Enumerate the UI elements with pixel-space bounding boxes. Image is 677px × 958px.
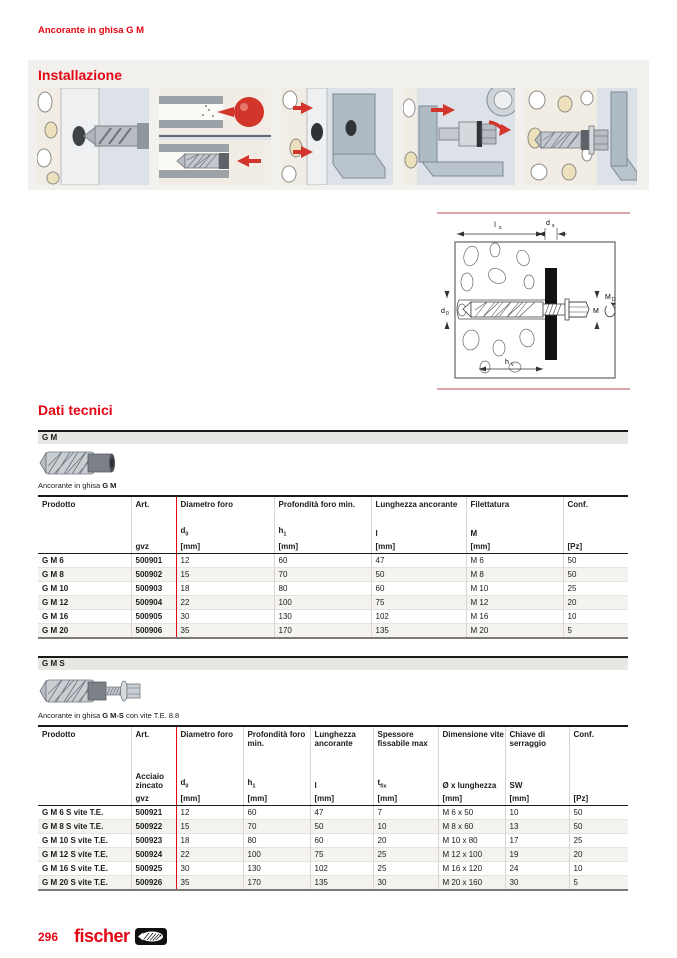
section-gms-band: G M S (38, 656, 628, 670)
table-cell: 18 (176, 834, 243, 848)
column-symbol: l (310, 762, 373, 792)
column-unit: [mm] (274, 540, 371, 554)
column-symbol: l (371, 524, 466, 540)
table-cell: 60 (243, 806, 310, 820)
table-cell: 22 (176, 596, 274, 610)
table-cell: 75 (310, 848, 373, 862)
table-cell: 500924 (131, 848, 176, 862)
data-table: ProdottoArt.Diametro foroProfondità foro… (38, 495, 628, 639)
column-header: Conf. (569, 726, 628, 762)
table-cell: 500925 (131, 862, 176, 876)
table-cell: 500905 (131, 610, 176, 624)
table-row: G M 10500903188060M 1025 (38, 582, 628, 596)
column-header: Diametro foro (176, 496, 274, 524)
column-unit (38, 540, 131, 554)
column-header: Art. (131, 496, 176, 524)
table-cell: M 10 (466, 582, 563, 596)
table-cell: 70 (274, 568, 371, 582)
column-unit (38, 792, 131, 806)
column-symbol (131, 524, 176, 540)
table-cell: G M 12 (38, 596, 131, 610)
column-header: Dimensione vite (438, 726, 505, 762)
table-cell: 500903 (131, 582, 176, 596)
dim-fixture-label: d (546, 220, 550, 227)
section-gm-band: G M (38, 430, 628, 444)
column-unit: [Pz] (563, 540, 628, 554)
table-cell: 47 (310, 806, 373, 820)
table-cell: 13 (505, 820, 569, 834)
column-symbol: tfix (373, 762, 438, 792)
table-row: G M 125009042210075M 1220 (38, 596, 628, 610)
installation-step-2-clean-insert-icon (159, 88, 271, 185)
table-cell: 50 (563, 554, 628, 568)
page-footer: 296 fischer (38, 926, 167, 947)
table-cell: 60 (371, 582, 466, 596)
table-row: G M 6500901126047M 650 (38, 554, 628, 568)
table-cell: 170 (243, 876, 310, 891)
product-caption: Ancorante in ghisa G M-S con vite T.E. 8… (38, 711, 628, 720)
dim-length-label: l (494, 222, 496, 229)
column-header: Profondità foro min. (274, 496, 371, 524)
table-cell: 35 (176, 624, 274, 639)
table-cell: M 8 x 60 (438, 820, 505, 834)
table-cell: 20 (563, 596, 628, 610)
installation-step-5-installed-icon (525, 88, 637, 185)
column-header: Art. (131, 726, 176, 762)
table-cell: G M 10 (38, 582, 131, 596)
table-cell: 19 (505, 848, 569, 862)
table-cell: 5 (563, 624, 628, 639)
table-cell: 15 (176, 568, 274, 582)
column-symbol: M (466, 524, 563, 540)
column-header: Chiave di serraggio (505, 726, 569, 762)
table-cell: G M 6 (38, 554, 131, 568)
column-unit: gvz (131, 540, 176, 554)
table-cell: G M 16 S vite T.E. (38, 862, 131, 876)
table-row: G M 10 S vite T.E.50092318806020M 10 x 8… (38, 834, 628, 848)
technical-drawing: l s d s d 0 M M D h v (437, 212, 630, 391)
column-symbol (38, 762, 131, 792)
column-header: Lunghezza ancorante (371, 496, 466, 524)
column-unit: [mm] (438, 792, 505, 806)
table-cell: 10 (373, 820, 438, 834)
table-row: G M 8500902157050M 850 (38, 568, 628, 582)
table-cell: 22 (176, 848, 243, 862)
column-symbol: Ø x lunghezza (438, 762, 505, 792)
brand-wordmark: fischer (74, 926, 130, 947)
column-header: Lunghezza ancorante (310, 726, 373, 762)
data-table: ProdottoArt.Diametro foroProfondità foro… (38, 725, 628, 891)
table-cell: 500902 (131, 568, 176, 582)
table-cell: M 20 x 160 (438, 876, 505, 891)
column-symbol (38, 524, 131, 540)
table-cell: 18 (176, 582, 274, 596)
column-symbol: h1 (243, 762, 310, 792)
table-cell: 500926 (131, 876, 176, 891)
table-cell: G M 10 S vite T.E. (38, 834, 131, 848)
installation-step-3-fixture-icon (281, 88, 393, 185)
column-unit: [Pz] (569, 792, 628, 806)
installation-section: Installazione (28, 60, 649, 190)
table-cell: 60 (310, 834, 373, 848)
dim-depth-label: h (505, 359, 509, 366)
table-cell: M 12 (466, 596, 563, 610)
table-cell: G M 20 S vite T.E. (38, 876, 131, 891)
installation-title: Installazione (38, 67, 122, 83)
table-cell: 10 (569, 862, 628, 876)
table-cell: 30 (373, 876, 438, 891)
installation-step-1-drill-icon (37, 88, 149, 185)
table-cell: 15 (176, 820, 243, 834)
dati-tecnici-title: Dati tecnici (38, 402, 113, 418)
dim-thread-label: M (593, 308, 599, 315)
header-row: gvz[mm][mm][mm][mm][mm][mm][Pz] (38, 792, 628, 806)
table-row: G M 6 S vite T.E.5009211260477M 6 x 5010… (38, 806, 628, 820)
table-cell: 50 (569, 820, 628, 834)
table-cell: 20 (373, 834, 438, 848)
table-row: G M 1650090530130102M 1610 (38, 610, 628, 624)
product-photo-gm (38, 448, 123, 478)
column-unit: [mm] (176, 540, 274, 554)
column-header: Spessore fissabile max (373, 726, 438, 762)
table-cell: M 16 (466, 610, 563, 624)
table-cell: G M 16 (38, 610, 131, 624)
header-row: d0h1lM (38, 524, 628, 540)
table-row: G M 16 S vite T.E.5009253013010225M 16 x… (38, 862, 628, 876)
column-symbol: Acciaio zincato (131, 762, 176, 792)
installation-steps (37, 88, 637, 185)
table-cell: 60 (274, 554, 371, 568)
table-cell: G M 6 S vite T.E. (38, 806, 131, 820)
table-cell: 24 (505, 862, 569, 876)
table-cell: 12 (176, 554, 274, 568)
table-cell: 75 (371, 596, 466, 610)
table-cell: 25 (563, 582, 628, 596)
table-cell: M 6 x 50 (438, 806, 505, 820)
table-cell: 20 (569, 848, 628, 862)
table-cell: G M 12 S vite T.E. (38, 848, 131, 862)
table-cell: 7 (373, 806, 438, 820)
column-header: Conf. (563, 496, 628, 524)
table-row: G M 2050090635170135M 205 (38, 624, 628, 639)
table-cell: 5 (569, 876, 628, 891)
table-cell: 30 (176, 610, 274, 624)
column-symbol: SW (505, 762, 569, 792)
table-cell: 25 (373, 862, 438, 876)
column-unit: [mm] (466, 540, 563, 554)
table-cell: 135 (310, 876, 373, 891)
table-cell: 102 (310, 862, 373, 876)
column-symbol (569, 762, 628, 792)
table-cell: 500923 (131, 834, 176, 848)
header-row: ProdottoArt.Diametro foroProfondità foro… (38, 496, 628, 524)
dim-length-sub: s (499, 225, 502, 231)
table-cell: 500901 (131, 554, 176, 568)
column-header: Profondità foro min. (243, 726, 310, 762)
table-cell: G M 8 S vite T.E. (38, 820, 131, 834)
page-number: 296 (38, 930, 58, 944)
table-cell: M 6 (466, 554, 563, 568)
table-cell: 47 (371, 554, 466, 568)
table-cell: 130 (274, 610, 371, 624)
table-cell: 102 (371, 610, 466, 624)
table-cell: 50 (569, 806, 628, 820)
product-caption: Ancorante in ghisa G M (38, 481, 628, 490)
table-cell: M 12 x 100 (438, 848, 505, 862)
table-cell: 30 (176, 862, 243, 876)
column-symbol: d0 (176, 524, 274, 540)
table-cell: 25 (373, 848, 438, 862)
table-cell: M 8 (466, 568, 563, 582)
dim-torque-label: M (605, 294, 611, 301)
table-cell: 70 (243, 820, 310, 834)
column-unit: [mm] (176, 792, 243, 806)
column-unit: [mm] (243, 792, 310, 806)
table-cell: 35 (176, 876, 243, 891)
fish-logo-icon (135, 928, 167, 945)
dim-hole-label: d (441, 308, 445, 315)
dim-hole-sub: 0 (446, 311, 449, 317)
table-cell: 135 (371, 624, 466, 639)
column-unit: [mm] (373, 792, 438, 806)
header-row: gvz[mm][mm][mm][mm][Pz] (38, 540, 628, 554)
table-cell: 50 (563, 568, 628, 582)
table-cell: 500921 (131, 806, 176, 820)
table-cell: 500922 (131, 820, 176, 834)
column-symbol: d0 (176, 762, 243, 792)
header-row: ProdottoArt.Diametro foroProfondità foro… (38, 726, 628, 762)
table-cell: 130 (243, 862, 310, 876)
catalog-page: Ancorante in ghisa G M Installazione (0, 0, 677, 958)
brand-logo: fischer (74, 926, 167, 947)
column-header: Prodotto (38, 726, 131, 762)
table-cell: M 16 x 120 (438, 862, 505, 876)
column-unit: gvz (131, 792, 176, 806)
table-gms: ProdottoArt.Diametro foroProfondità foro… (38, 725, 628, 891)
table-cell: 50 (371, 568, 466, 582)
dim-torque-sub: D (612, 297, 616, 303)
table-cell: 17 (505, 834, 569, 848)
column-symbol (563, 524, 628, 540)
table-cell: 80 (243, 834, 310, 848)
table-row: G M 12 S vite T.E.500924221007525M 12 x … (38, 848, 628, 862)
section-gms: G M S Ancorante in ghisa G M-S con vite … (38, 656, 628, 891)
table-row: G M 8 S vite T.E.50092215705010M 8 x 601… (38, 820, 628, 834)
table-gm: ProdottoArt.Diametro foroProfondità foro… (38, 495, 628, 639)
table-cell: 170 (274, 624, 371, 639)
product-photo-gms (38, 674, 148, 708)
table-cell: 10 (563, 610, 628, 624)
dim-fixture-sub: s (552, 223, 555, 229)
table-cell: 12 (176, 806, 243, 820)
table-cell: 100 (243, 848, 310, 862)
column-header: Filettatura (466, 496, 563, 524)
page-header-title: Ancorante in ghisa G M (38, 25, 144, 36)
column-unit: [mm] (505, 792, 569, 806)
table-cell: 50 (310, 820, 373, 834)
table-cell: 500906 (131, 624, 176, 639)
column-header: Prodotto (38, 496, 131, 524)
column-header: Diametro foro (176, 726, 243, 762)
header-row: Acciaio zincatod0h1ltfixØ x lunghezzaSW (38, 762, 628, 792)
column-unit: [mm] (371, 540, 466, 554)
table-cell: G M 20 (38, 624, 131, 639)
table-cell: M 10 x 80 (438, 834, 505, 848)
table-cell: 25 (569, 834, 628, 848)
table-cell: 100 (274, 596, 371, 610)
table-cell: 10 (505, 806, 569, 820)
table-cell: 500904 (131, 596, 176, 610)
table-cell: M 20 (466, 624, 563, 639)
table-cell: G M 8 (38, 568, 131, 582)
column-symbol: h1 (274, 524, 371, 540)
installation-step-4-torque-icon (403, 88, 515, 185)
table-cell: 80 (274, 582, 371, 596)
section-gm: G M Ancorante in ghisa G M ProdottoArt.D… (38, 430, 628, 639)
table-cell: 30 (505, 876, 569, 891)
table-row: G M 20 S vite T.E.5009263517013530M 20 x… (38, 876, 628, 891)
column-unit: [mm] (310, 792, 373, 806)
